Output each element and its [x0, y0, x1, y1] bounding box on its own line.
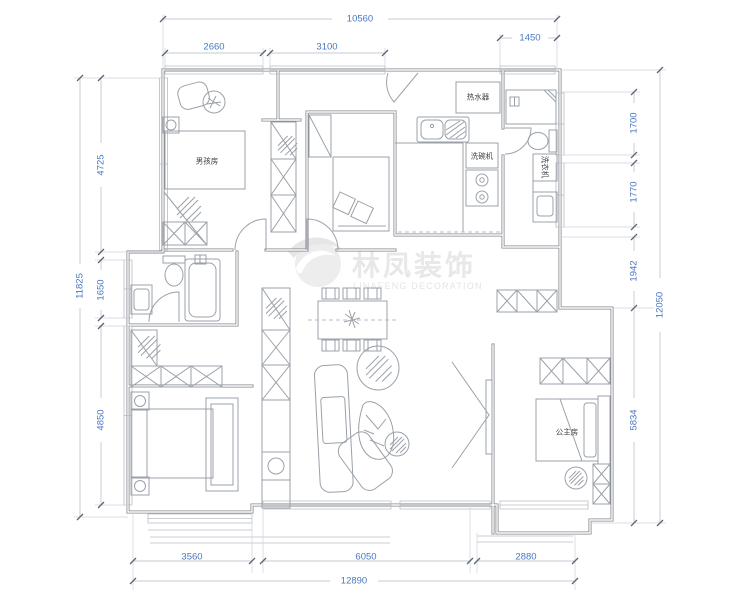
tv-panel: [486, 380, 492, 454]
living-room-furniture: [262, 288, 492, 508]
dim-right-segment-2: 1770: [629, 181, 640, 202]
pillow: [351, 201, 374, 224]
middle-bed: [333, 157, 389, 231]
plant: [357, 346, 399, 390]
dim-right-overall: 12050: [655, 292, 666, 318]
dim-left-segment-3: 4850: [96, 409, 107, 430]
floor-plan-page: 林凤装饰 LIN&FENG DECORATION: [0, 0, 740, 604]
dim-top-segment-1: 2660: [203, 42, 224, 53]
table-plant: [344, 310, 360, 328]
stove: [466, 170, 498, 206]
pillow: [333, 192, 356, 215]
entry-door: [387, 73, 418, 102]
bathroom-door: [505, 128, 531, 154]
chair: [176, 80, 211, 111]
princess-room-furniture: [497, 290, 610, 504]
counter-edge: [395, 143, 463, 232]
bathroom-left: [131, 255, 220, 321]
nightstand: [131, 392, 149, 410]
princess-room-label: 公主房: [556, 427, 579, 437]
dim-top-segment-2: 3100: [316, 42, 337, 53]
dim-right-segment-4: 5834: [629, 409, 640, 430]
master-bed: [131, 409, 213, 478]
dishwasher-label: 洗碗机: [471, 151, 494, 161]
dim-left-overall: 11825: [75, 273, 86, 299]
toilet: [528, 133, 548, 150]
storage-column: [262, 288, 290, 508]
dim-right-segment-1: 1700: [629, 112, 640, 133]
dim-top-segment-3: 1450: [519, 33, 540, 44]
bathtub: [185, 259, 220, 321]
watermark-brand-en: LIN&FENG DECORATION: [353, 281, 483, 291]
headboard: [598, 396, 610, 464]
watermark-logo: [288, 237, 342, 287]
dim-left-segment-2: 1650: [96, 279, 107, 300]
left-bedroom-furniture: [131, 392, 238, 495]
washing-machine-label: 洗衣机: [541, 156, 551, 179]
toilet: [165, 264, 183, 286]
dim-bottom-segment-2: 6050: [355, 552, 376, 563]
boys-room-label: 男孩房: [196, 156, 219, 166]
dim-bottom-segment-1: 3560: [181, 552, 202, 563]
watermark-brand-cn: 林凤装饰: [352, 249, 476, 282]
dim-top-overall: 10560: [347, 14, 373, 25]
dim-bottom-segment-3: 2880: [515, 552, 536, 563]
middle-room-furniture: [309, 115, 389, 231]
floor-plan-drawing: 林凤装饰 LIN&FENG DECORATION: [0, 0, 740, 604]
left-bath-door: [149, 292, 179, 322]
nightstand: [131, 477, 149, 495]
windows: [124, 66, 588, 543]
toilet-tank: [163, 256, 185, 263]
boys-room-door: [235, 219, 266, 250]
sofa: [314, 362, 397, 497]
dim-right-segment-3: 1942: [629, 260, 640, 281]
left-closet: [131, 330, 222, 387]
dim-bottom-overall: 12890: [341, 576, 367, 587]
tv-view-lines: [452, 362, 489, 468]
water-heater-label: 热水器: [467, 92, 490, 102]
dim-left-segment-1: 4725: [96, 154, 107, 175]
